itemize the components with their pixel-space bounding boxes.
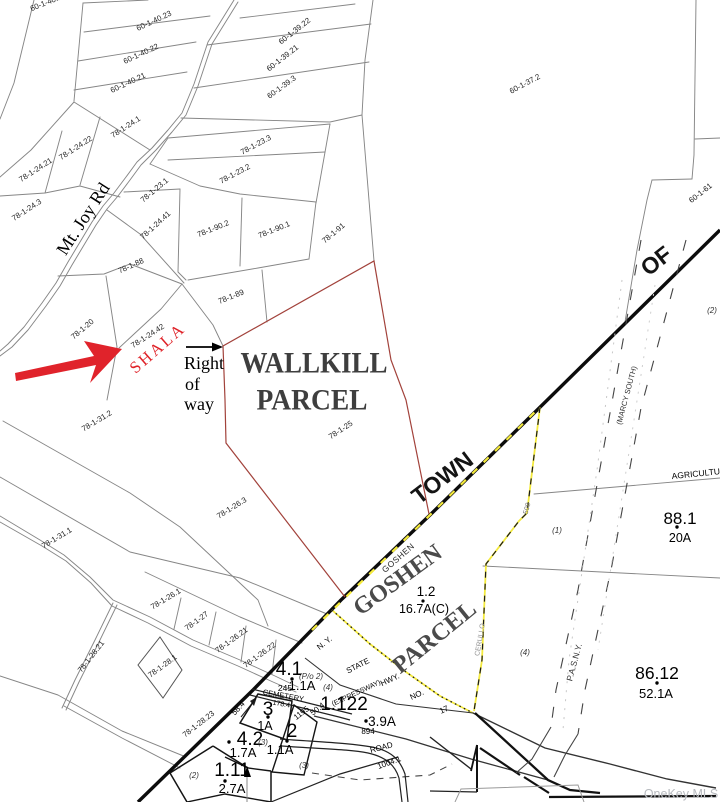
svg-text:2.7A: 2.7A [219,781,246,796]
svg-text:(2): (2) [707,306,717,315]
svg-text:way: way [184,394,214,414]
svg-text:4.1: 4.1 [276,659,302,680]
svg-text:86.12: 86.12 [635,663,679,683]
svg-text:20A: 20A [669,531,692,545]
svg-text:16.7A(C): 16.7A(C) [399,602,449,616]
svg-text:(4): (4) [520,648,530,657]
svg-text:(1): (1) [552,526,562,535]
svg-text:(3): (3) [258,738,268,747]
svg-text:88.1: 88.1 [663,509,696,528]
svg-text:894: 894 [361,727,375,736]
svg-text:of: of [185,374,200,394]
svg-text:2: 2 [287,721,298,742]
svg-text:WALLKILL: WALLKILL [241,347,388,380]
svg-text:1.1A: 1.1A [267,742,294,757]
svg-text:OneKey MLS: OneKey MLS [644,787,718,801]
svg-text:(P/o 2): (P/o 2) [299,672,323,681]
svg-text:1.11: 1.11 [214,760,250,781]
svg-text:1.2: 1.2 [417,584,436,599]
svg-text:(2): (2) [189,771,199,780]
svg-text:1.122: 1.122 [320,694,368,715]
svg-text:PARCEL: PARCEL [257,384,368,417]
svg-text:Right: Right [184,353,224,373]
svg-text:(4): (4) [323,683,333,692]
svg-text:(3): (3) [299,761,309,770]
svg-text:1.7A: 1.7A [230,745,257,760]
svg-text:52.1A: 52.1A [639,686,673,701]
